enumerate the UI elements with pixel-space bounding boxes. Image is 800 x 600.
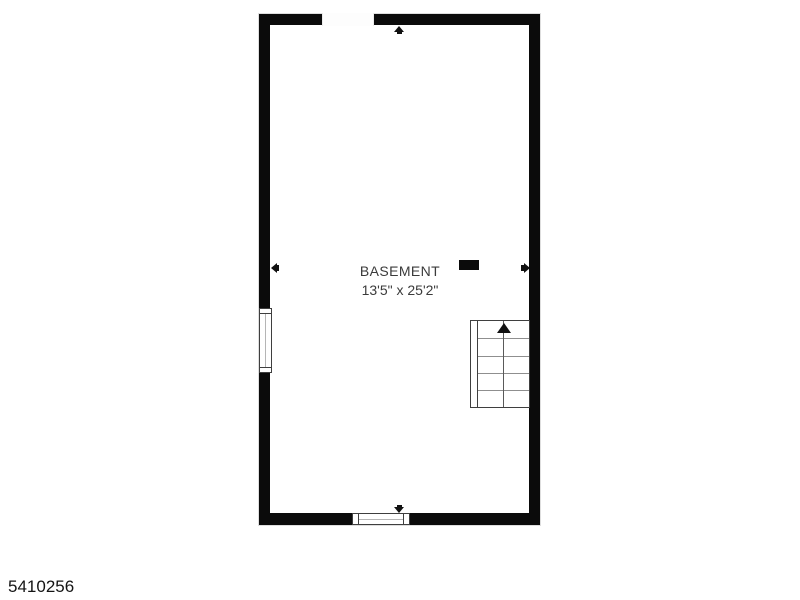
- listing-id: 5410256: [8, 577, 74, 597]
- room-label-block: BASEMENT 13'5" x 25'2": [300, 262, 500, 299]
- window-frame-line: [260, 367, 271, 368]
- floorplan-canvas: BASEMENT 13'5" x 25'2" 5410256: [0, 0, 800, 600]
- window-left-wall: [259, 308, 272, 373]
- window-bottom-wall: [352, 513, 410, 525]
- doorway-opening: [322, 13, 374, 26]
- stair-direction-arrow-icon: [497, 323, 511, 333]
- window-pane-line: [265, 314, 266, 367]
- dimension-arrow-right-icon: [524, 263, 530, 273]
- stair-walkline: [503, 321, 504, 407]
- staircase: [477, 320, 530, 408]
- dimension-arrow-up-base: [397, 31, 402, 34]
- dimension-arrow-down-base: [397, 505, 402, 508]
- room-name: BASEMENT: [300, 262, 500, 280]
- dimension-arrow-right-base: [521, 265, 524, 271]
- room-dimensions: 13'5" x 25'2": [300, 281, 500, 299]
- window-frame-line: [403, 514, 404, 524]
- window-pane-line: [359, 519, 403, 520]
- dimension-arrow-left-base: [276, 265, 279, 271]
